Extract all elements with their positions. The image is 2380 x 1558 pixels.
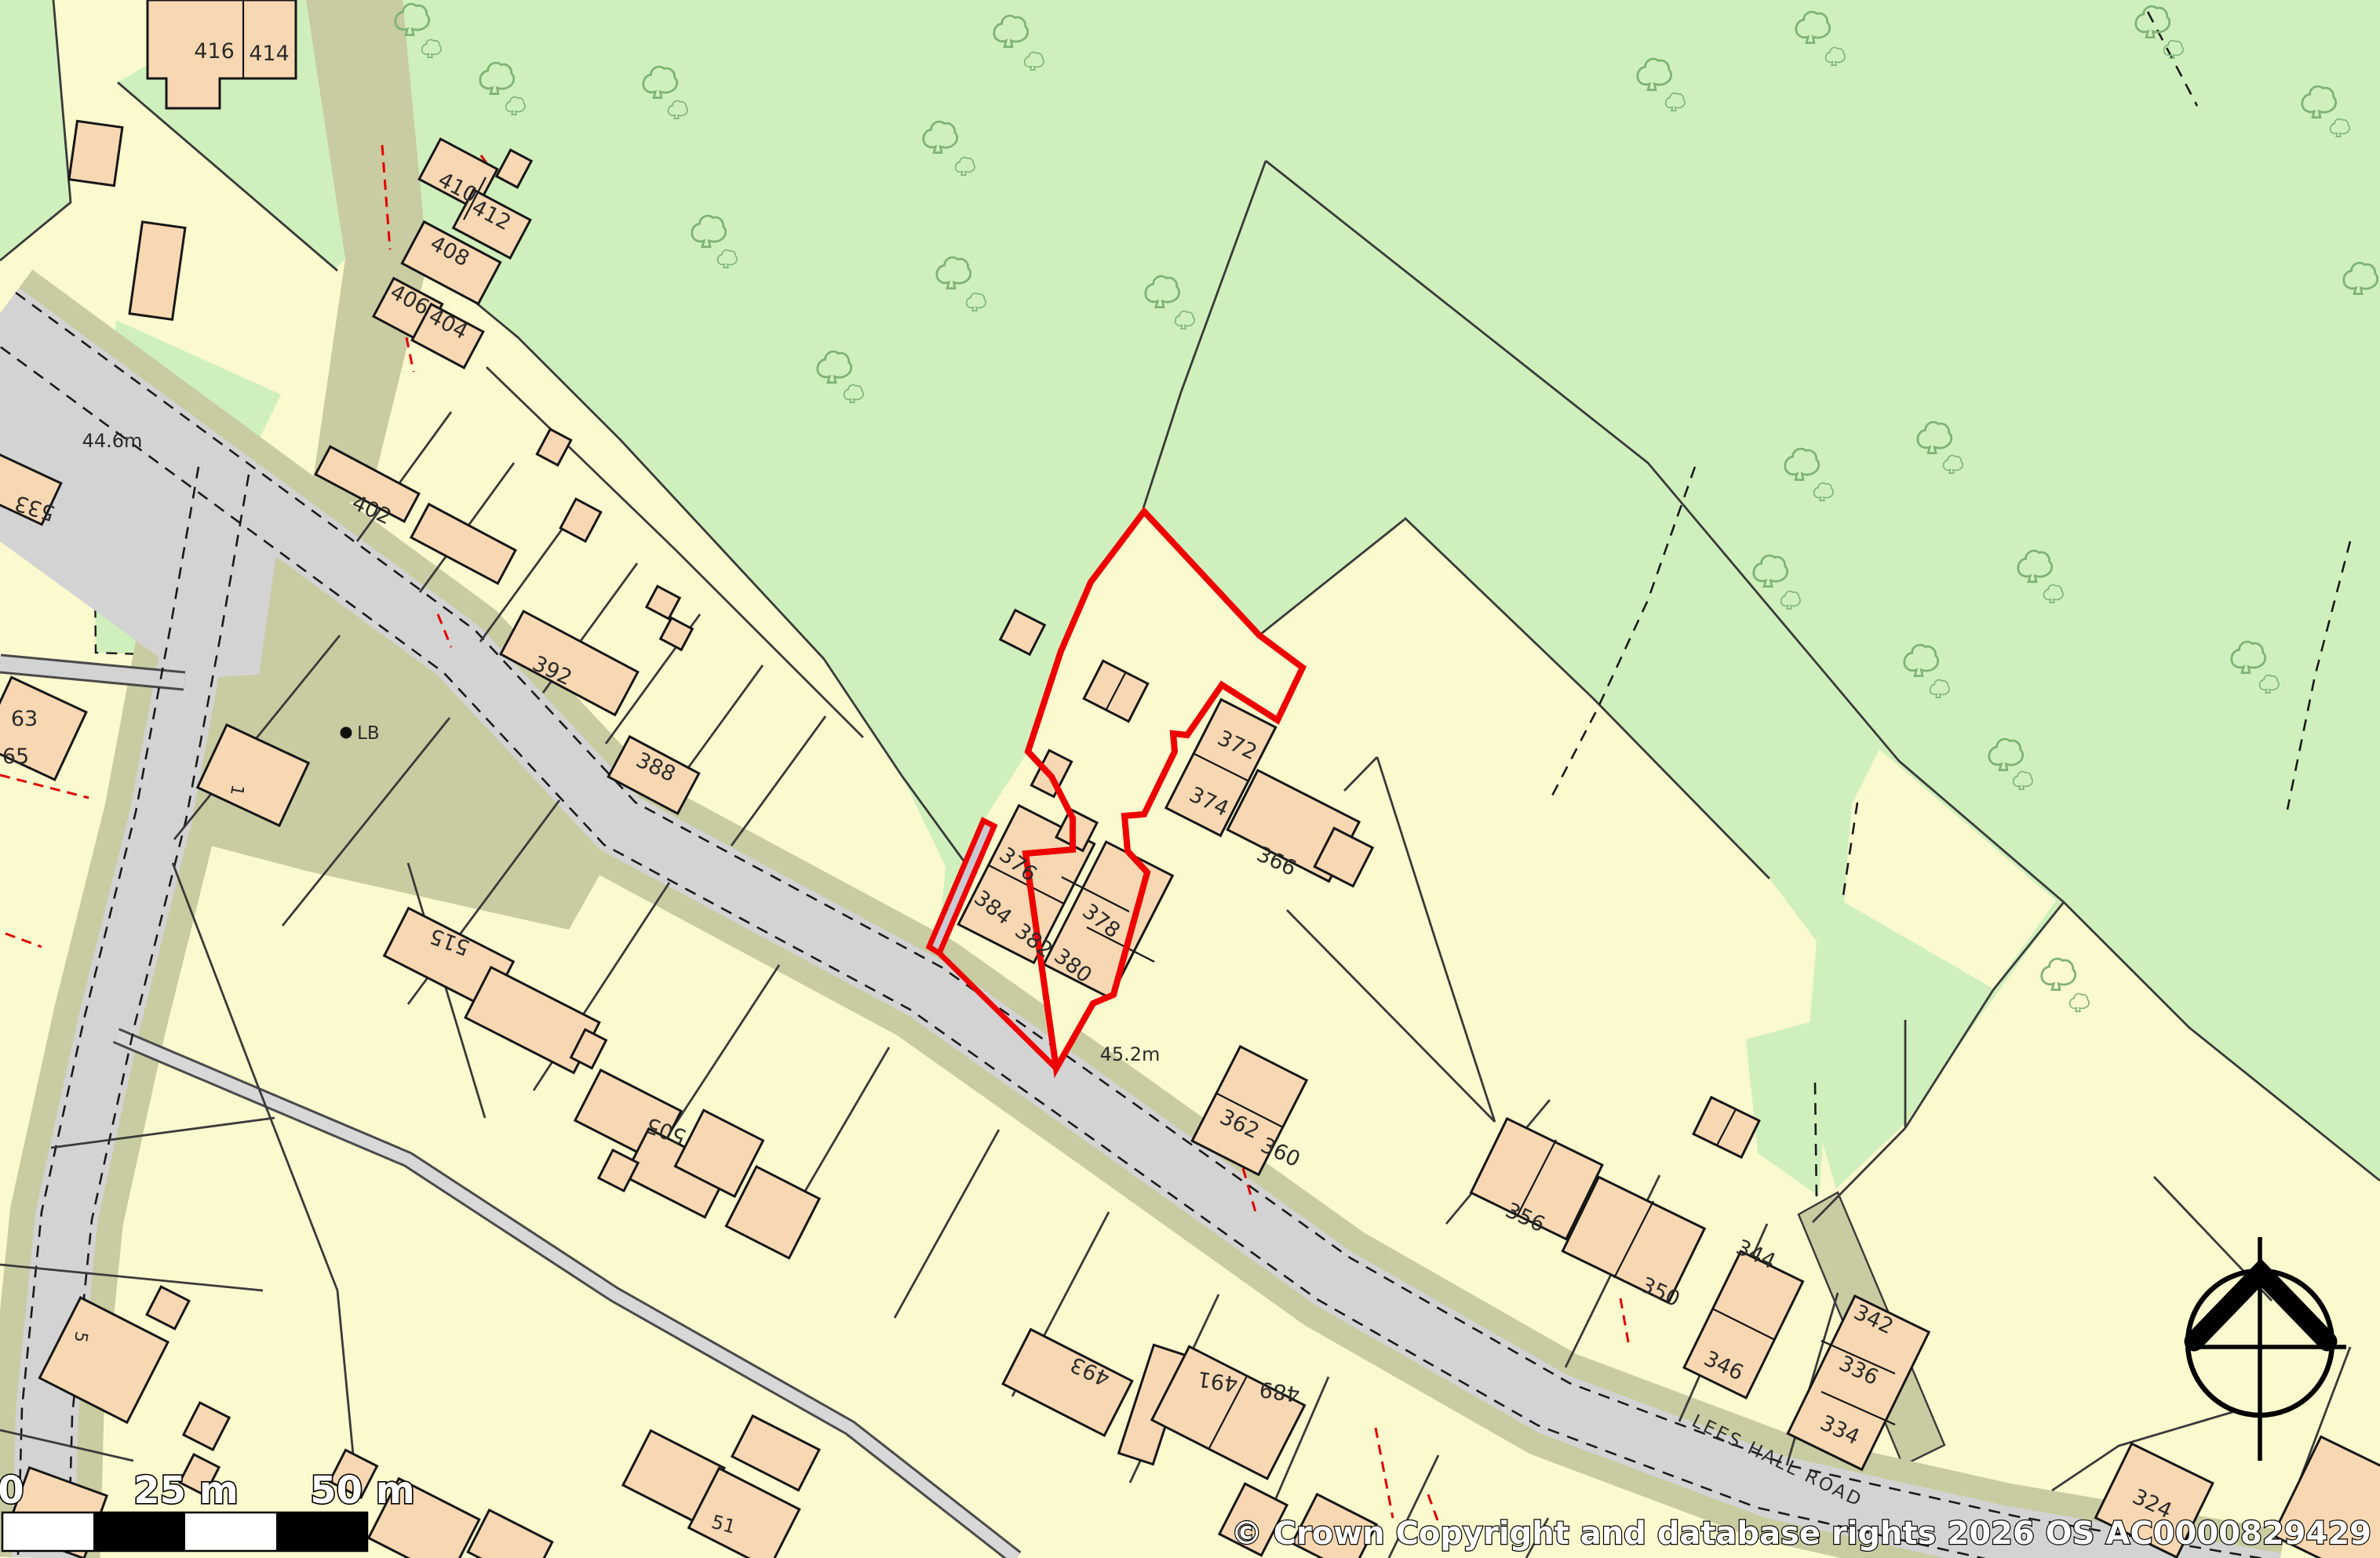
scale-label-25m: 25 m (133, 1469, 239, 1512)
site-location-map: 4164144104124084064044023923885336365151… (0, 0, 2380, 1558)
map-label-416: 416 (194, 39, 235, 64)
scale-label-50m: 50 m (310, 1469, 415, 1512)
scale-label-0: 0 (0, 1469, 24, 1512)
map-label-44-6m: 44.6m (82, 430, 143, 452)
map-label-lb: LB (357, 723, 380, 744)
map-label-45-2m: 45.2m (1100, 1043, 1161, 1065)
os-map-canvas: 4164144104124084064044023923885336365151… (0, 0, 2380, 1558)
building (69, 121, 122, 185)
copyright-text: © Crown Copyright and database rights 20… (1231, 1516, 2371, 1552)
map-label-65: 65 (2, 744, 29, 769)
map-label-414: 414 (249, 42, 290, 66)
letter-box-marker (341, 727, 352, 739)
map-label-63: 63 (11, 707, 38, 731)
